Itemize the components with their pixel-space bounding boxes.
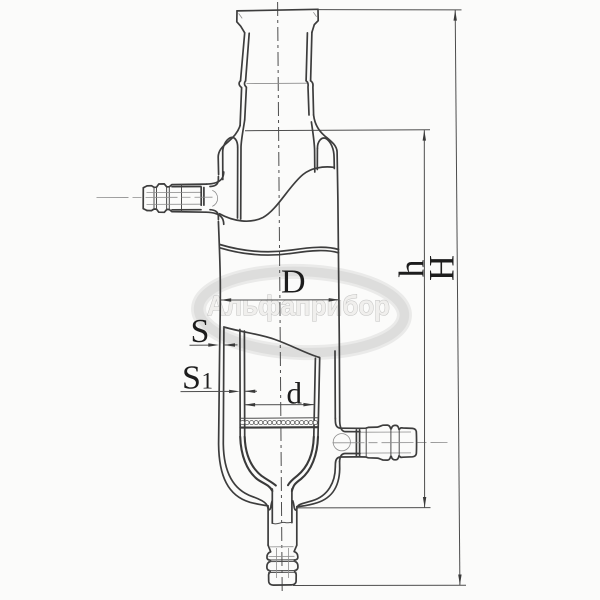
svg-text:S: S xyxy=(182,360,201,397)
svg-text:1: 1 xyxy=(202,369,214,394)
svg-text:D: D xyxy=(281,264,306,301)
svg-text:S: S xyxy=(191,313,210,350)
svg-text:d: d xyxy=(287,376,303,411)
svg-text:H: H xyxy=(422,255,462,281)
